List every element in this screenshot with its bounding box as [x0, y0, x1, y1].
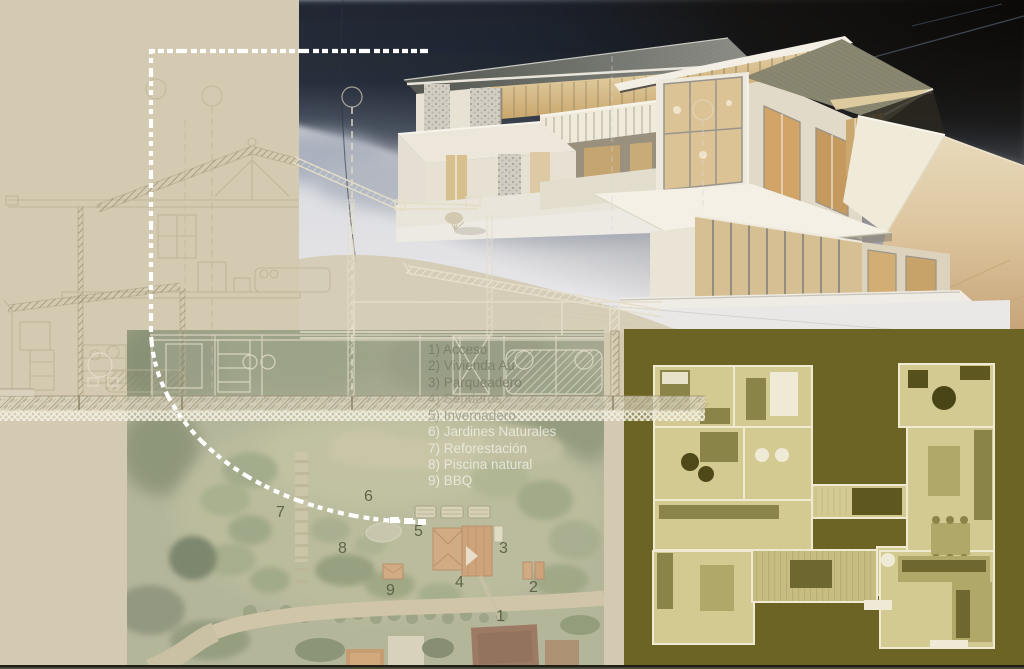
svg-text:5: 5 [414, 523, 423, 540]
svg-text:6) Jardines Naturales: 6) Jardines Naturales [428, 424, 557, 439]
svg-text:8) Piscina natural: 8) Piscina natural [428, 457, 532, 472]
svg-text:2: 2 [529, 579, 538, 596]
svg-text:9: 9 [386, 582, 395, 599]
svg-text:3) Parqueadero: 3) Parqueadero [428, 375, 522, 390]
svg-text:1) Acceso: 1) Acceso [428, 342, 487, 357]
svg-text:4) Senderos: 4) Senderos [428, 391, 502, 406]
svg-text:4: 4 [455, 574, 464, 591]
svg-text:9) BBQ: 9) BBQ [428, 473, 472, 488]
svg-text:5) Invernadero: 5) Invernadero [428, 408, 516, 423]
svg-text:7) Reforestación: 7) Reforestación [428, 441, 527, 456]
svg-text:3: 3 [499, 540, 508, 557]
svg-text:2) Vivienda Au: 2) Vivienda Au [428, 358, 515, 373]
svg-text:1: 1 [496, 608, 505, 625]
svg-text:6: 6 [364, 488, 373, 505]
svg-text:8: 8 [338, 540, 347, 557]
svg-text:7: 7 [276, 504, 285, 521]
